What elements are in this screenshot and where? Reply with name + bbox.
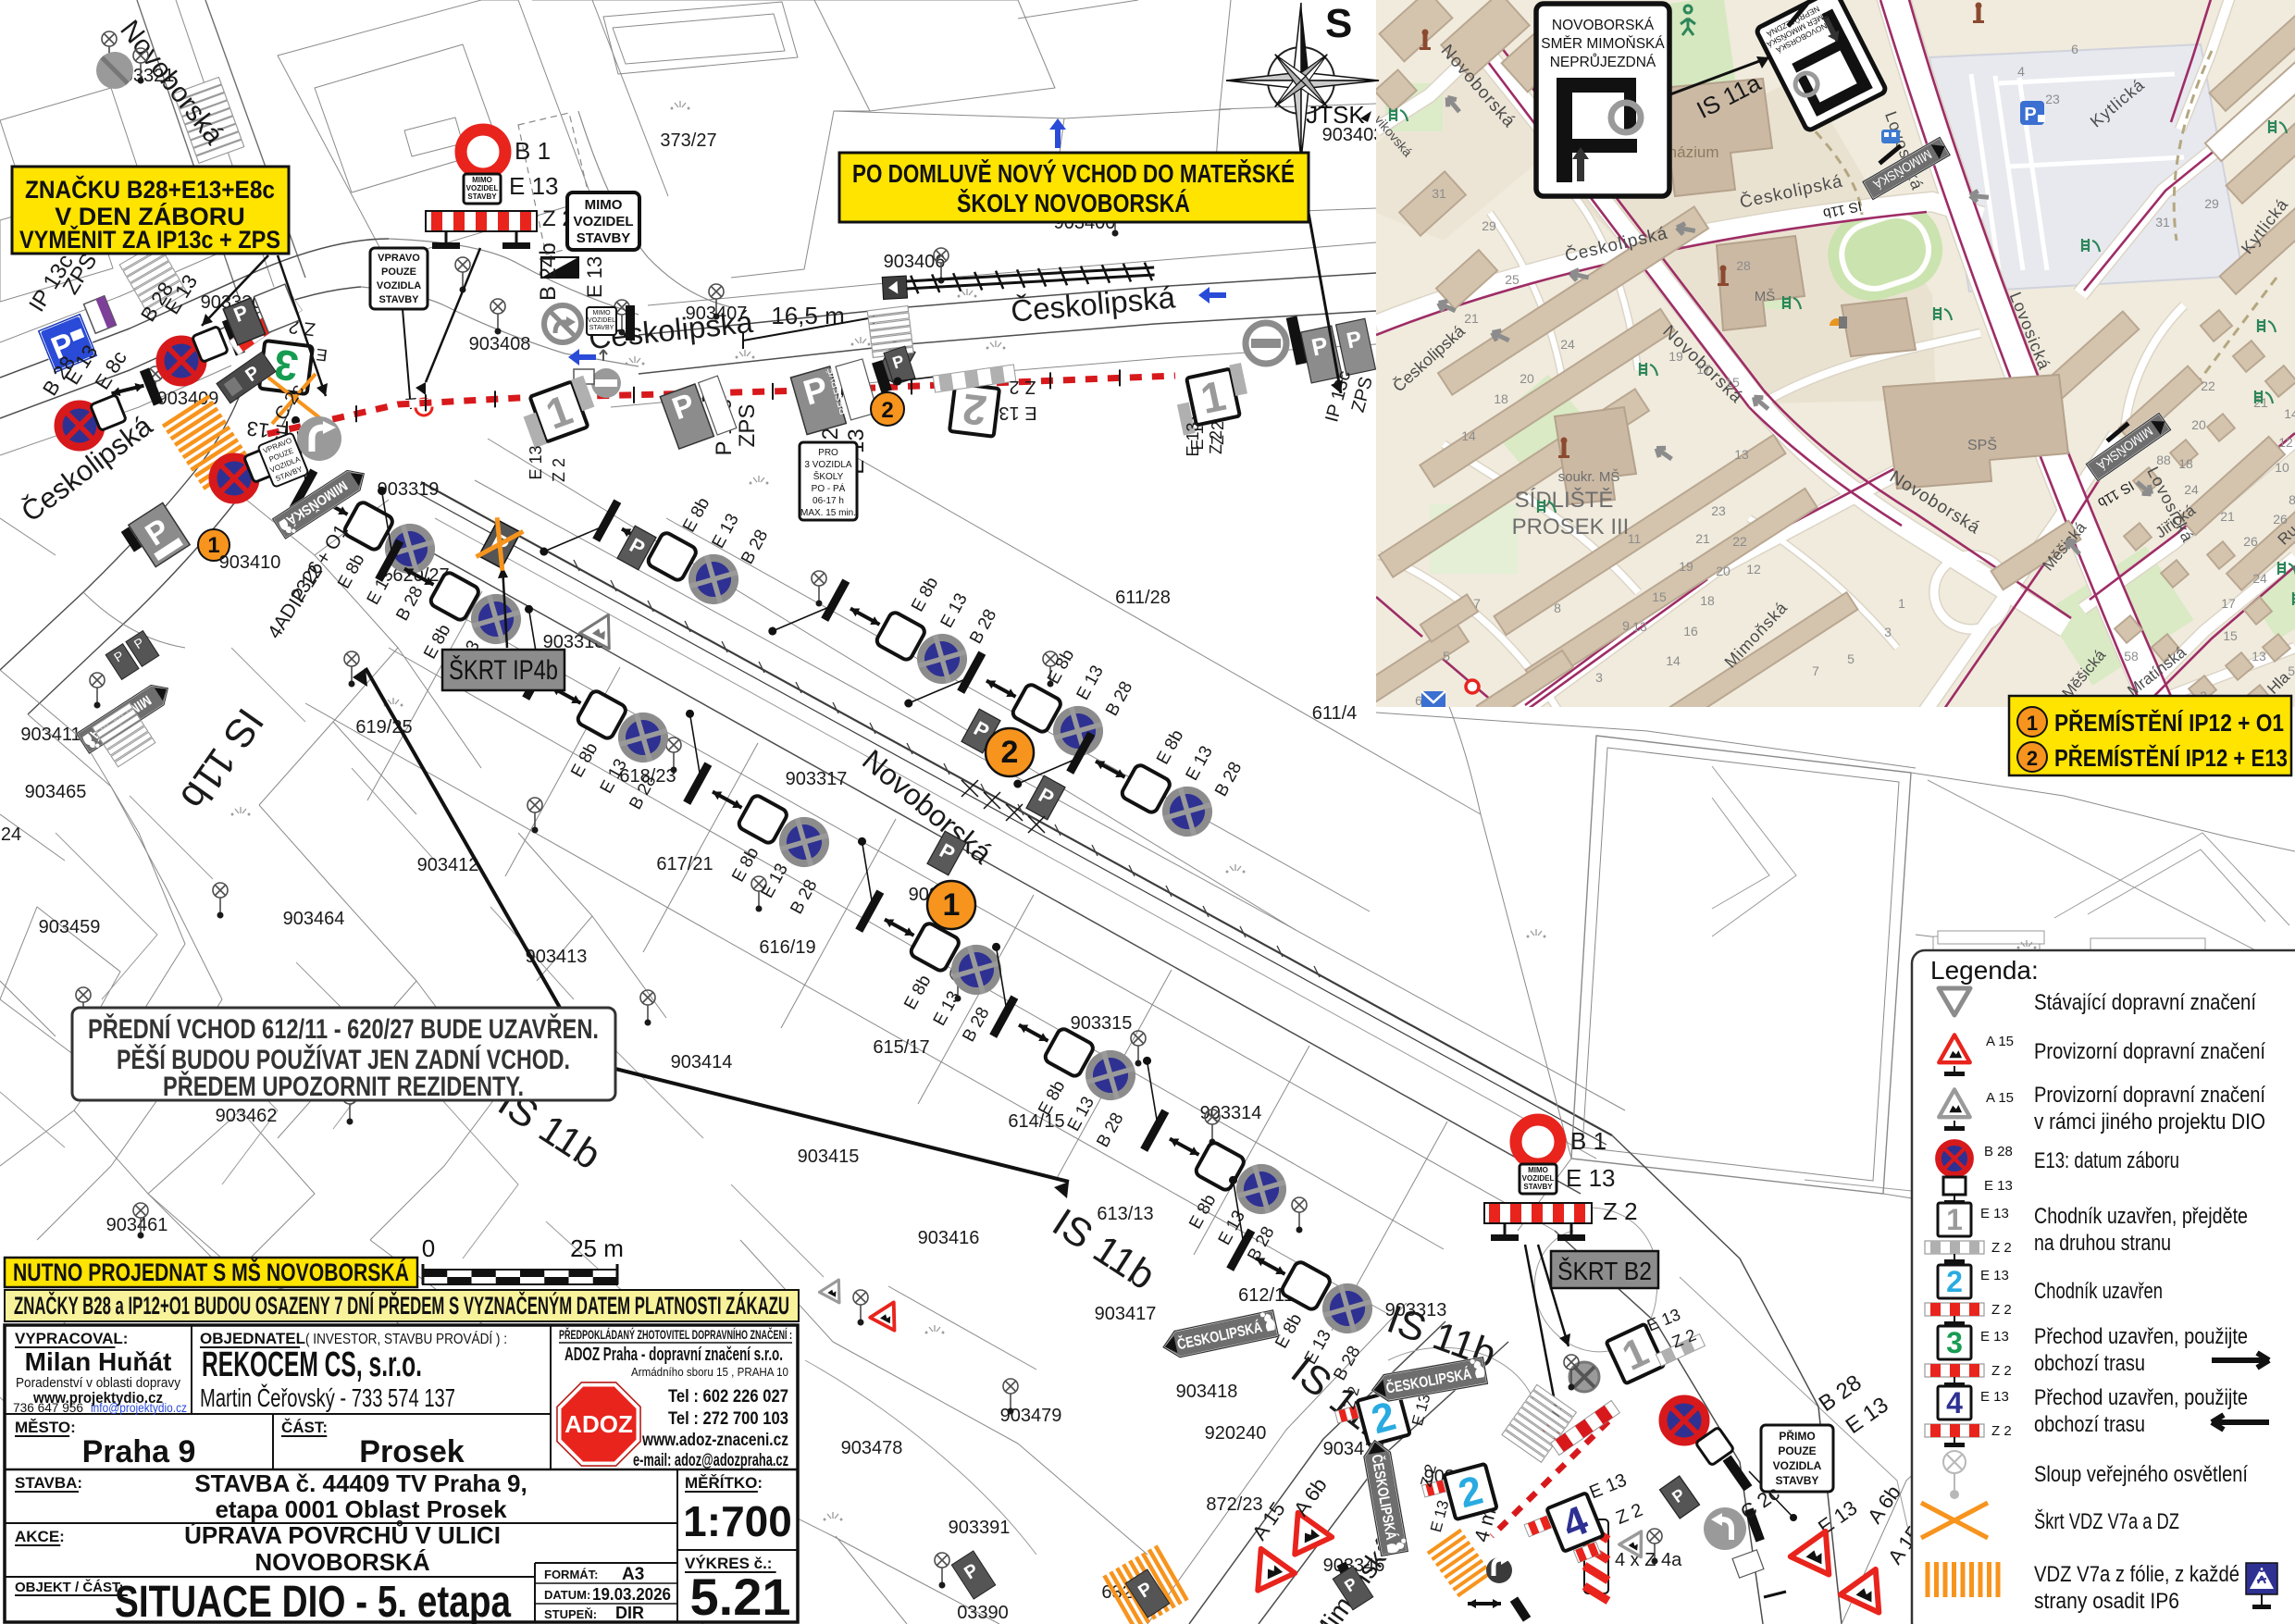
svg-text:872/23: 872/23: [1206, 1494, 1262, 1515]
svg-text:903317: 903317: [786, 769, 848, 789]
svg-text:VPRAVO: VPRAVO: [378, 253, 420, 264]
svg-text:1: 1: [1898, 596, 1905, 611]
svg-text:ŠKRT B2: ŠKRT B2: [1557, 1257, 1652, 1285]
svg-text:Praha 9: Praha 9: [82, 1434, 196, 1469]
svg-text:903411: 903411: [20, 725, 81, 745]
svg-text:920240: 920240: [1205, 1423, 1267, 1444]
svg-text:www.adoz-znaceni.cz: www.adoz-znaceni.cz: [641, 1431, 788, 1450]
svg-text:4 x Z 4a: 4 x Z 4a: [1615, 1550, 1682, 1570]
svg-text:Sloup veřejného osvětlení: Sloup veřejného osvětlení: [2034, 1462, 2248, 1487]
svg-text:31: 31: [1432, 186, 1446, 201]
svg-text:VOZIDEL: VOZIDEL: [573, 214, 633, 229]
svg-text:obchozí trasu: obchozí trasu: [2034, 1351, 2145, 1376]
svg-text:14: 14: [1666, 653, 1681, 668]
svg-text:Prosek: Prosek: [359, 1434, 464, 1469]
svg-text:2: 2: [2027, 747, 2038, 770]
svg-text:614/15: 614/15: [1008, 1111, 1064, 1132]
svg-text:E 13: E 13: [1980, 1329, 2009, 1345]
svg-text:19: 19: [1669, 349, 1683, 364]
svg-text:NUTNO PROJEDNAT S MŠ NOVOBORSK: NUTNO PROJEDNAT S MŠ NOVOBORSKÁ: [13, 1258, 409, 1286]
svg-text:31: 31: [2155, 215, 2170, 229]
svg-text:6: 6: [1415, 693, 1422, 708]
svg-text:B 1: B 1: [515, 137, 551, 165]
svg-text:17: 17: [1696, 362, 1711, 377]
svg-text:7: 7: [1812, 663, 1819, 678]
svg-text:25 m: 25 m: [570, 1234, 624, 1262]
svg-text:ADOZ Praha - dopravní značení: ADOZ Praha - dopravní značení s.r.o.: [564, 1345, 783, 1365]
svg-text:4: 4: [1946, 1386, 1963, 1419]
svg-text:STAVBY: STAVBY: [467, 192, 497, 201]
svg-text:28: 28: [1736, 258, 1751, 273]
svg-text:Legenda:: Legenda:: [1930, 956, 2039, 985]
svg-text:A 15: A 15: [1986, 1034, 2014, 1049]
svg-text:903412: 903412: [417, 855, 479, 875]
svg-text:VOZIDLA: VOZIDLA: [377, 280, 421, 291]
svg-text:STAVBA č. 44409 TV Praha 9,: STAVBA č. 44409 TV Praha 9,: [194, 1469, 527, 1497]
svg-text:info@projektydio.cz: info@projektydio.cz: [91, 1400, 187, 1415]
svg-text:ZNAČKY B28 a IP12+O1 BUDOU OSA: ZNAČKY B28 a IP12+O1 BUDOU OSAZENY 7 DNÍ…: [14, 1291, 789, 1320]
svg-text:Z 2: Z 2: [1991, 1363, 2012, 1379]
svg-text:STAVBY: STAVBY: [379, 294, 420, 305]
svg-text:SPŠ: SPŠ: [1967, 436, 1997, 453]
svg-text:615/17: 615/17: [873, 1037, 929, 1058]
svg-text:E 13: E 13: [1184, 422, 1202, 456]
svg-text:DIR: DIR: [615, 1604, 644, 1622]
svg-text:616/19: 616/19: [759, 937, 815, 958]
svg-text:B 1: B 1: [1570, 1127, 1606, 1155]
svg-text:5: 5: [1847, 651, 1855, 666]
svg-text:Z 2: Z 2: [1207, 430, 1225, 454]
svg-text:903465: 903465: [25, 782, 87, 802]
svg-text:Z 2: Z 2: [1991, 1302, 2012, 1318]
svg-text:Škrt VDZ V7a a DZ: Škrt VDZ V7a a DZ: [2034, 1508, 2179, 1534]
svg-text:903459: 903459: [39, 917, 101, 937]
svg-text:13: 13: [1734, 447, 1749, 462]
svg-text:VOZIDLA: VOZIDLA: [1773, 1459, 1822, 1472]
svg-text:1: 1: [943, 887, 961, 923]
svg-text:0: 0: [422, 1234, 435, 1262]
svg-text:MIMO: MIMO: [1528, 1166, 1548, 1174]
svg-text:18: 18: [2178, 456, 2193, 471]
svg-text:20: 20: [2191, 417, 2206, 432]
svg-text:23: 23: [2045, 92, 2060, 106]
svg-text:REKOCEM CS, s.r.o.: REKOCEM CS, s.r.o.: [202, 1345, 422, 1384]
svg-text:21: 21: [1464, 311, 1479, 326]
svg-text:06-17 h: 06-17 h: [813, 496, 844, 506]
svg-text:E 13: E 13: [1980, 1206, 2009, 1221]
svg-text:Tel : 602 226 027: Tel : 602 226 027: [668, 1387, 788, 1407]
svg-text:STUPEŇ:: STUPEŇ:: [544, 1607, 597, 1621]
svg-text:PĚŠÍ BUDOU POUŽÍVAT JEN ZADNÍ: PĚŠÍ BUDOU POUŽÍVAT JEN ZADNÍ VCHOD.: [117, 1044, 570, 1075]
svg-text:MAX. 15 min.: MAX. 15 min.: [800, 508, 856, 518]
svg-text:E 13: E 13: [1984, 1178, 2013, 1194]
svg-text:Přechod uzavřen, použijte: Přechod uzavřen, použijte: [2034, 1324, 2248, 1349]
svg-text:etapa 0001 Oblast Prosek: etapa 0001 Oblast Prosek: [215, 1495, 507, 1523]
svg-text:18: 18: [1494, 391, 1508, 406]
svg-text:SÍDLIŠTĚ: SÍDLIŠTĚ: [1515, 487, 1614, 513]
svg-text:VOZIDEL: VOZIDEL: [1522, 1174, 1555, 1183]
svg-text:13: 13: [1632, 619, 1647, 634]
svg-text:3: 3: [1946, 1326, 1963, 1359]
svg-text:1:700: 1:700: [683, 1497, 792, 1545]
svg-text:24: 24: [2184, 482, 2199, 497]
svg-text:617/21: 617/21: [656, 854, 713, 874]
svg-text:OBJEKT / ČÁST:: OBJEKT / ČÁST:: [15, 1579, 124, 1595]
svg-text:903417: 903417: [1095, 1304, 1157, 1324]
svg-text:FORMÁT:: FORMÁT:: [544, 1568, 599, 1581]
svg-text:E 13: E 13: [1980, 1268, 2009, 1283]
svg-text:E13: datum záboru: E13: datum záboru: [2034, 1148, 2179, 1173]
svg-text:MŠ: MŠ: [1755, 289, 1776, 304]
svg-text:ŠKOLY NOVOBORSKÁ: ŠKOLY NOVOBORSKÁ: [957, 188, 1190, 217]
svg-text:12: 12: [2278, 435, 2293, 450]
svg-text:22: 22: [2201, 378, 2215, 393]
svg-text:DATUM:: DATUM:: [544, 1588, 590, 1602]
svg-text:3: 3: [1595, 670, 1603, 685]
svg-text:903315: 903315: [1071, 1013, 1133, 1034]
svg-text:21: 21: [2220, 509, 2235, 524]
svg-text:VOZIDEL: VOZIDEL: [588, 317, 615, 324]
svg-text:E 13: E 13: [583, 256, 606, 298]
svg-text:3: 3: [1884, 625, 1892, 639]
svg-text:PRO: PRO: [818, 448, 838, 458]
svg-text:58: 58: [2124, 649, 2139, 663]
svg-text:ČÁST:: ČÁST:: [281, 1419, 328, 1436]
svg-text:5: 5: [1443, 649, 1450, 663]
svg-text:5.21: 5.21: [690, 1568, 791, 1624]
svg-text:ZNAČKU B28+E13+E8c: ZNAČKU B28+E13+E8c: [25, 175, 275, 204]
svg-text:Milan Huňát: Milan Huňát: [25, 1347, 172, 1376]
svg-text:903406: 903406: [884, 252, 946, 272]
svg-text:NEPRŮJEZDNÁ: NEPRŮJEZDNÁ: [1550, 54, 1656, 70]
svg-text:na druhou stranu: na druhou stranu: [2034, 1231, 2171, 1256]
svg-text:P: P: [2024, 105, 2036, 125]
svg-text:MĚSTO:: MĚSTO:: [15, 1419, 76, 1436]
svg-text:STAVBY: STAVBY: [1523, 1183, 1553, 1191]
svg-text:611/4: 611/4: [1312, 703, 1358, 724]
svg-text:903478: 903478: [841, 1438, 903, 1458]
svg-text:VDZ V7a z fólie, z každé: VDZ V7a z fólie, z každé: [2034, 1562, 2239, 1587]
svg-text:A 15: A 15: [1986, 1090, 2014, 1106]
svg-text:7: 7: [1473, 596, 1481, 611]
svg-text:903461: 903461: [106, 1215, 168, 1235]
svg-text:Chodník uzavřen: Chodník uzavřen: [2034, 1279, 2163, 1304]
svg-text:v rámci jiného projektu DIO: v rámci jiného projektu DIO: [2034, 1110, 2265, 1134]
svg-text:STAVBA:: STAVBA:: [15, 1474, 82, 1492]
svg-text:Chodník uzavřen, přejděte: Chodník uzavřen, přejděte: [2034, 1204, 2248, 1229]
svg-text:6: 6: [2071, 42, 2078, 56]
svg-text:E 13: E 13: [509, 172, 559, 200]
svg-text:20: 20: [1520, 371, 1534, 386]
svg-text:PO DOMLUVĚ NOVÝ VCHOD DO MATEŘ: PO DOMLUVĚ NOVÝ VCHOD DO MATEŘSKÉ: [852, 159, 1295, 188]
svg-text:03390: 03390: [957, 1603, 1009, 1623]
svg-text:21: 21: [1695, 531, 1710, 546]
svg-text:ÚPRAVA POVRCHŮ V ULICI: ÚPRAVA POVRCHŮ V ULICI: [184, 1519, 501, 1549]
svg-text:20: 20: [1716, 564, 1731, 578]
svg-text:MIMO: MIMO: [592, 310, 611, 316]
svg-text:AKCE:: AKCE:: [15, 1528, 65, 1545]
svg-text:2: 2: [1946, 1265, 1963, 1298]
svg-text:613/13: 613/13: [1097, 1204, 1153, 1224]
svg-text:E 13: E 13: [1980, 1389, 2009, 1405]
svg-text:MĚŘÍTKO:: MĚŘÍTKO:: [685, 1474, 763, 1492]
svg-text:903319: 903319: [378, 479, 440, 500]
svg-text:obchozí trasu: obchozí trasu: [2034, 1412, 2145, 1437]
svg-text:14: 14: [2284, 406, 2295, 421]
svg-text:S: S: [1325, 1, 1352, 46]
svg-text:e-mail: adoz@adozpraha.cz: e-mail: adoz@adozpraha.cz: [633, 1451, 788, 1470]
svg-text:STAVBY: STAVBY: [589, 325, 614, 331]
svg-text:58: 58: [2288, 663, 2295, 678]
svg-text:PŘIMO: PŘIMO: [1779, 1429, 1815, 1443]
svg-text:E 13: E 13: [527, 445, 545, 479]
svg-text:STAVBY: STAVBY: [577, 230, 631, 246]
svg-text:Z 2: Z 2: [1991, 1240, 2012, 1256]
svg-text:ZPS: ZPS: [735, 404, 760, 448]
svg-text:17: 17: [2221, 596, 2236, 611]
svg-text:SMĚR MIMOŇSKÁ: SMĚR MIMOŇSKÁ: [1541, 36, 1665, 52]
svg-text:903391: 903391: [949, 1518, 1011, 1538]
svg-text:SITUACE DIO - 5. etapa: SITUACE DIO - 5. etapa: [115, 1578, 511, 1624]
svg-text:29: 29: [2204, 196, 2219, 211]
svg-text:B 24b: B 24b: [536, 242, 561, 301]
svg-text:strany osadit IP6: strany osadit IP6: [2034, 1589, 2179, 1614]
svg-text:14: 14: [1461, 428, 1476, 443]
svg-text:ŠKOLY: ŠKOLY: [813, 470, 844, 482]
svg-text:2: 2: [881, 398, 893, 423]
svg-text:Tel : 272 700 103: Tel : 272 700 103: [668, 1409, 788, 1429]
svg-text:E 13: E 13: [999, 403, 1036, 423]
svg-text:13: 13: [2252, 649, 2266, 663]
svg-text:Provizorní dopravní značení: Provizorní dopravní značení: [2034, 1083, 2265, 1108]
svg-text:B 28: B 28: [1984, 1144, 2013, 1159]
svg-text:24: 24: [1, 824, 21, 845]
svg-text:Z 2: Z 2: [550, 458, 568, 482]
svg-text:9: 9: [1622, 618, 1630, 633]
svg-text:Provizorní dopravní značení: Provizorní dopravní značení: [2034, 1039, 2265, 1064]
svg-text:STAVBY: STAVBY: [1776, 1474, 1819, 1487]
svg-text:736 647 956: 736 647 956: [13, 1400, 83, 1415]
svg-text:Z 2: Z 2: [1603, 1197, 1638, 1225]
svg-text:8: 8: [1554, 601, 1561, 615]
svg-text:VYMĚNIT ZA IP13c + ZPS: VYMĚNIT ZA IP13c + ZPS: [19, 225, 280, 254]
svg-text:VOZIDEL: VOZIDEL: [466, 184, 499, 192]
svg-text:2: 2: [1001, 735, 1019, 770]
svg-text:903415: 903415: [798, 1147, 860, 1167]
svg-text:22: 22: [1732, 534, 1747, 549]
svg-text:Martin Čeřovský - 733 574 137: Martin Čeřovský - 733 574 137: [200, 1383, 455, 1412]
svg-text:26: 26: [2273, 512, 2288, 527]
svg-text:11: 11: [1628, 531, 1642, 546]
svg-text:PŘEDEM UPOZORNIT REZIDENTY.: PŘEDEM UPOZORNIT REZIDENTY.: [163, 1071, 524, 1102]
svg-text:903462: 903462: [216, 1106, 278, 1126]
svg-text:24: 24: [2252, 571, 2267, 586]
svg-text:1: 1: [1946, 1203, 1963, 1236]
svg-text:Z 2: Z 2: [1010, 377, 1036, 397]
svg-text:VYPRACOVAL:: VYPRACOVAL:: [15, 1330, 128, 1347]
svg-text:19: 19: [1679, 559, 1693, 574]
svg-text:Přechod uzavřen, použijte: Přechod uzavřen, použijte: [2034, 1385, 2248, 1410]
svg-text:PROSEK III: PROSEK III: [1512, 514, 1630, 539]
svg-text:18: 18: [1700, 593, 1715, 608]
svg-text:POUZE: POUZE: [1778, 1444, 1816, 1457]
svg-text:15: 15: [1652, 589, 1667, 604]
svg-text:10: 10: [2275, 460, 2289, 475]
svg-text:8: 8: [2289, 492, 2295, 507]
svg-text:PŘEDNÍ VCHOD 612/11 - 620/27 B: PŘEDNÍ VCHOD 612/11 - 620/27 BUDE UZAVŘE…: [88, 1013, 599, 1045]
svg-text:ŠKRT IP4b: ŠKRT IP4b: [449, 654, 558, 686]
svg-text:903410: 903410: [219, 552, 281, 573]
svg-text:A3: A3: [622, 1565, 644, 1584]
svg-text:JTSK: JTSK: [1306, 101, 1365, 129]
svg-text:Z 2: Z 2: [1991, 1423, 2012, 1439]
svg-text:24: 24: [1560, 337, 1575, 352]
svg-text:soukr. MŠ: soukr. MŠ: [1558, 469, 1620, 485]
svg-text:PŘEMÍSTĚNÍ IP12 + O1: PŘEMÍSTĚNÍ IP12 + O1: [2054, 709, 2284, 737]
svg-text:NOVOBORSKÁ: NOVOBORSKÁ: [1552, 18, 1655, 33]
svg-text:903408: 903408: [469, 334, 531, 354]
svg-text:903414: 903414: [671, 1052, 733, 1072]
svg-text:611/28: 611/28: [1115, 588, 1171, 608]
svg-text:PO - PÁ: PO - PÁ: [812, 482, 846, 494]
svg-text:903464: 903464: [283, 909, 345, 929]
svg-text:NOVOBORSKÁ: NOVOBORSKÁ: [254, 1548, 429, 1576]
svg-text:88: 88: [2156, 452, 2171, 467]
svg-text:19.03.2026: 19.03.2026: [592, 1585, 671, 1604]
svg-text:16: 16: [1683, 624, 1698, 638]
svg-text:ADOZ: ADOZ: [564, 1410, 633, 1438]
svg-text:25: 25: [1505, 272, 1520, 287]
svg-text:12: 12: [1746, 562, 1761, 576]
svg-text:E 13: E 13: [1566, 1164, 1616, 1192]
svg-text:POUZE: POUZE: [381, 267, 416, 278]
svg-text:PŘEDPOKLÁDANÝ ZHOTOVITEL DOPR: PŘEDPOKLÁDANÝ ZHOTOVITEL DOPRAVNÍHO ZNAČ…: [559, 1328, 792, 1342]
svg-text:1: 1: [2027, 712, 2038, 735]
svg-text:MIMO: MIMO: [585, 197, 623, 213]
svg-text:15: 15: [2223, 628, 2238, 643]
svg-text:3 VOZIDLA: 3 VOZIDLA: [804, 460, 851, 470]
svg-text:903418: 903418: [1176, 1382, 1238, 1402]
svg-text:26: 26: [2243, 534, 2258, 549]
svg-text:PŘEMÍSTĚNÍ IP12 + E13: PŘEMÍSTĚNÍ IP12 + E13: [2054, 744, 2288, 772]
svg-text:23: 23: [1711, 503, 1726, 518]
svg-text:MIMO: MIMO: [472, 176, 492, 184]
svg-text:15: 15: [1725, 375, 1740, 390]
svg-text:Stávající dopravní značení: Stávající dopravní značení: [2034, 990, 2256, 1015]
svg-text:4: 4: [2017, 64, 2025, 79]
svg-text:903416: 903416: [918, 1228, 980, 1248]
svg-text:373/27: 373/27: [660, 130, 716, 151]
svg-text:29: 29: [1482, 218, 1496, 233]
svg-text:Armádního sboru 15 , PRAHA 10: Armádního sboru 15 , PRAHA 10: [631, 1365, 788, 1379]
